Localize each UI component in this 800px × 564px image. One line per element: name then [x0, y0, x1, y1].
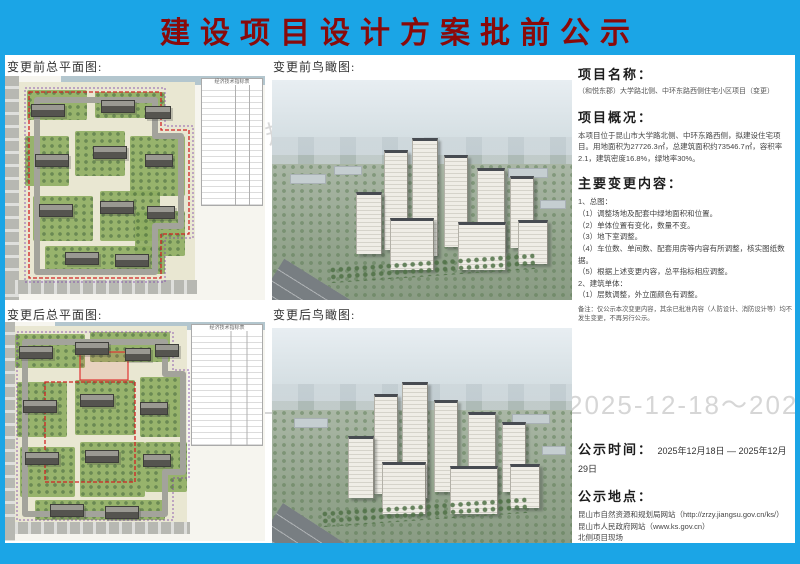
change-line: 1、总图： [578, 196, 795, 208]
label-aerial-after: 变更后鸟瞰图: [273, 306, 355, 323]
low-building [542, 446, 566, 455]
tower [356, 192, 382, 254]
indicator-table-title: 经济技术指标表 [192, 325, 262, 331]
label-plan-before: 变更前总平面图: [7, 58, 102, 75]
notice-place-header: 公示地点： [578, 486, 795, 505]
change-line: （4）车位数、单间数、配套用房等内容有所调整，核实图纸数据。 [578, 243, 795, 266]
notice-place-gov-site[interactable]: 昆山市人民政府网站（www.ks.gov.cn） [578, 521, 795, 533]
changes-note: 备注：仅公示本次变更内容，其余已批准内容（人防设计、消防设计等）均不发生变更，不… [578, 305, 795, 324]
building [100, 201, 134, 214]
building [35, 154, 69, 167]
building [85, 450, 119, 463]
building [19, 346, 53, 359]
change-line: （1）层数调整，外立面颜色有调整。 [578, 289, 795, 301]
header-bar: 建设项目设计方案批前公示 [0, 0, 800, 55]
left-border [0, 0, 5, 564]
low-building [290, 174, 326, 184]
label-plan-after: 变更后总平面图: [7, 306, 102, 323]
building [39, 204, 73, 217]
aerial-view-before [272, 80, 572, 300]
project-overview-header: 项目概况： [578, 107, 795, 126]
building [140, 402, 168, 415]
change-line: （2）单体位置有变化，数量不变。 [578, 220, 795, 232]
building [105, 506, 139, 519]
site-plan-after: 经济技术指标表 [5, 322, 265, 541]
building [101, 100, 135, 113]
footer-bar [0, 543, 800, 564]
indicator-table: 经济技术指标表 [191, 324, 263, 446]
building [155, 344, 179, 357]
project-overview-text: 本项目位于昆山市大学路北侧、中环东路西侧，拟建设住宅项目。用地面积为27726.… [578, 130, 795, 165]
building [65, 252, 99, 265]
building [145, 106, 171, 119]
building [145, 154, 173, 167]
low-building [294, 418, 328, 428]
label-aerial-before: 变更前鸟瞰图: [273, 58, 355, 75]
change-line: （1）调整场地及配套中绿地面积和位置。 [578, 208, 795, 220]
project-name-text: （和悦东郡）大学路北侧、中环东路西侧住宅小区项目（变更） [578, 87, 795, 98]
info-column: 项目名称： （和悦东郡）大学路北侧、中环东路西侧住宅小区项目（变更） 项目概况：… [578, 55, 795, 543]
building [115, 254, 149, 267]
public-notice-poster: 建设项目设计方案批前公示 昆山市自然资源和规划局 昆山市自然资源和规划局（202… [0, 0, 800, 564]
change-line: （5）根据上述变更内容，总平指标相应调整。 [578, 266, 795, 278]
building [125, 348, 151, 361]
building [80, 394, 114, 407]
site-plan-before: 经济技术指标表 [5, 76, 265, 300]
building [143, 454, 171, 467]
right-border [795, 0, 800, 564]
building [25, 452, 59, 465]
notice-time-header: 公示时间： [578, 442, 653, 457]
changes-header: 主要变更内容： [578, 173, 795, 192]
change-line: 2、建筑单体： [578, 278, 795, 290]
change-line: （3）地下室调整。 [578, 231, 795, 243]
building [23, 400, 57, 413]
notice-place-website[interactable]: 昆山市自然资源和规划局网站（http://zrzy.jiangsu.gov.cn… [578, 509, 795, 521]
project-name-header: 项目名称： [578, 64, 795, 83]
low-building [334, 166, 362, 175]
notice-time-row: 公示时间： 2025年12月18日 — 2025年12月29日 [578, 439, 795, 477]
building [31, 104, 65, 117]
low-building [540, 200, 566, 209]
tower [348, 436, 374, 498]
page-title: 建设项目设计方案批前公示 [0, 8, 800, 52]
aerial-view-after [272, 328, 572, 543]
building [147, 206, 175, 219]
indicator-table: 经济技术指标表 [201, 78, 263, 206]
indicator-table-title: 经济技术指标表 [202, 79, 262, 85]
building [93, 146, 127, 159]
building [75, 342, 109, 355]
building [50, 504, 84, 517]
